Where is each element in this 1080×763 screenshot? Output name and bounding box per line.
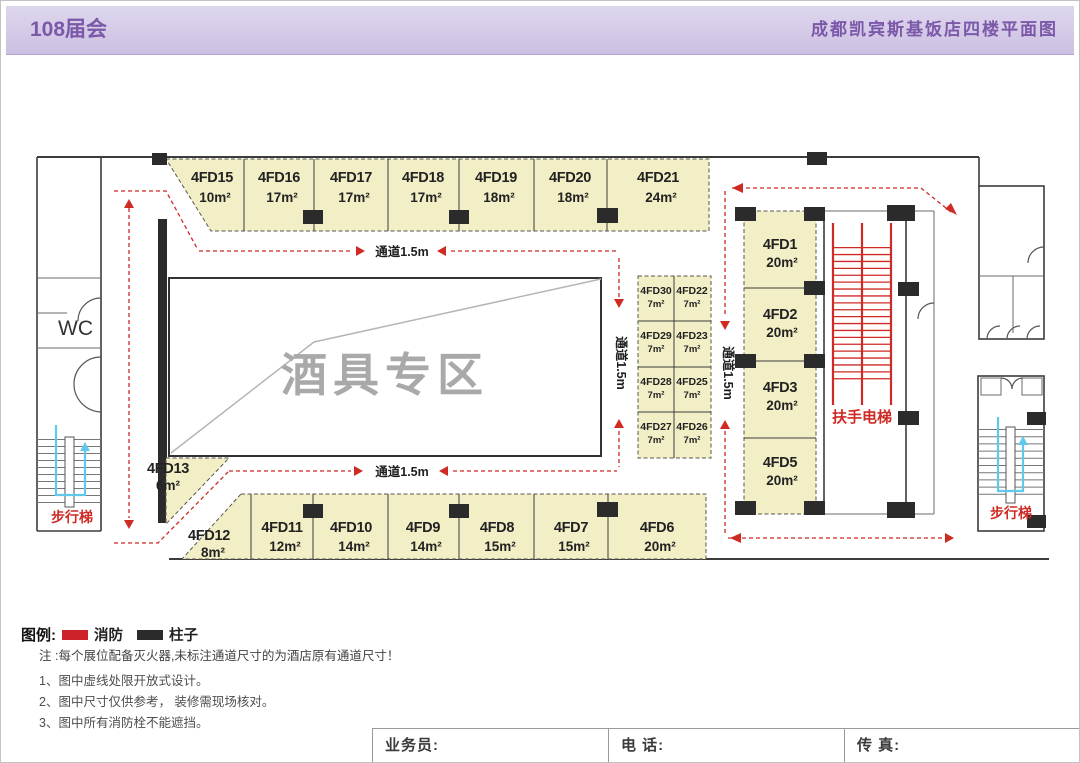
svg-text:4FD21: 4FD21 xyxy=(637,170,679,186)
central-zone: 酒具专区 xyxy=(169,278,601,456)
pillar-swatch xyxy=(137,630,163,640)
svg-text:4FD3: 4FD3 xyxy=(763,380,797,396)
svg-text:7m²: 7m² xyxy=(684,390,701,401)
svg-text:4FD16: 4FD16 xyxy=(258,170,300,186)
booth-row-top: 4FD1510m² 4FD1617m² 4FD1717m² 4FD1817m² … xyxy=(166,159,709,231)
aisle-label-bottom: 通道1.5m xyxy=(375,464,429,479)
svg-text:18m²: 18m² xyxy=(557,190,589,205)
svg-text:15m²: 15m² xyxy=(484,539,516,554)
legend: 图例: 消防 柱子 xyxy=(21,624,198,645)
svg-text:7m²: 7m² xyxy=(684,435,701,446)
svg-text:4FD17: 4FD17 xyxy=(330,170,372,186)
wc-label: WC xyxy=(58,317,93,340)
svg-text:7m²: 7m² xyxy=(684,299,701,310)
svg-text:4FD20: 4FD20 xyxy=(549,170,591,186)
svg-text:4FD9: 4FD9 xyxy=(406,520,440,536)
svg-text:17m²: 17m² xyxy=(338,190,370,205)
svg-text:7m²: 7m² xyxy=(648,344,665,355)
zone-label: 酒具专区 xyxy=(281,349,489,401)
svg-text:17m²: 17m² xyxy=(410,190,442,205)
floor-plan-page: 108届会 成都凯宾斯基饭店四楼平面图 xyxy=(0,0,1080,763)
note-3: 3、图中所有消防栓不能遮挡。 xyxy=(39,713,399,734)
booth-grid-small: 4FD307m² 4FD227m² 4FD297m² 4FD237m² 4FD2… xyxy=(638,276,711,458)
fire-swatch xyxy=(62,630,88,640)
svg-text:20m²: 20m² xyxy=(766,398,798,413)
svg-text:4FD6: 4FD6 xyxy=(640,520,674,536)
svg-text:4FD27: 4FD27 xyxy=(640,421,672,433)
svg-text:4FD23: 4FD23 xyxy=(676,330,708,342)
svg-text:12m²: 12m² xyxy=(269,539,301,554)
svg-text:18m²: 18m² xyxy=(483,190,515,205)
svg-text:4FD12: 4FD12 xyxy=(188,528,230,544)
svg-text:10m²: 10m² xyxy=(199,190,231,205)
svg-text:24m²: 24m² xyxy=(645,190,677,205)
escalator-label: 扶手电梯 xyxy=(832,408,892,426)
salesperson-field: 业务员: xyxy=(373,729,609,763)
note-main: 注 :每个展位配备灭火器,未标注通道尺寸的为酒店原有通道尺寸！ xyxy=(39,646,399,667)
svg-text:4FD18: 4FD18 xyxy=(402,170,444,186)
aisle-label-top: 通道1.5m xyxy=(375,244,429,259)
svg-text:7m²: 7m² xyxy=(648,435,665,446)
aisle-label-right: 通道1.5m xyxy=(721,346,736,400)
svg-text:4FD15: 4FD15 xyxy=(191,170,233,186)
svg-text:4FD13: 4FD13 xyxy=(147,461,189,477)
svg-text:4FD26: 4FD26 xyxy=(676,421,708,433)
svg-text:8m²: 8m² xyxy=(201,545,226,560)
svg-text:4FD19: 4FD19 xyxy=(475,170,517,186)
stairs-right-label: 步行梯 xyxy=(990,505,1032,521)
svg-text:20m²: 20m² xyxy=(766,325,798,340)
svg-text:4FD10: 4FD10 xyxy=(330,520,372,536)
svg-text:20m²: 20m² xyxy=(766,255,798,270)
legend-fire-label: 消防 xyxy=(94,624,123,645)
svg-text:4FD5: 4FD5 xyxy=(763,455,797,471)
svg-text:4FD1: 4FD1 xyxy=(763,237,797,253)
svg-text:14m²: 14m² xyxy=(410,539,442,554)
svg-text:4FD30: 4FD30 xyxy=(640,285,672,297)
svg-text:4FD2: 4FD2 xyxy=(763,307,797,323)
svg-text:4FD25: 4FD25 xyxy=(676,376,708,388)
legend-pillar-label: 柱子 xyxy=(169,624,198,645)
svg-text:4FD22: 4FD22 xyxy=(676,285,708,297)
svg-text:7m²: 7m² xyxy=(648,299,665,310)
phone-field: 电 话: xyxy=(609,729,845,763)
notes: 注 :每个展位配备灭火器,未标注通道尺寸的为酒店原有通道尺寸！ 1、图中虚线处限… xyxy=(39,646,399,734)
svg-text:6m²: 6m² xyxy=(156,478,181,493)
svg-text:15m²: 15m² xyxy=(558,539,590,554)
svg-text:14m²: 14m² xyxy=(338,539,370,554)
svg-text:4FD29: 4FD29 xyxy=(640,330,672,342)
svg-text:7m²: 7m² xyxy=(684,344,701,355)
legend-title: 图例: xyxy=(21,624,56,645)
aisle-label-mid: 通道1.5m xyxy=(614,336,629,390)
stairs-right: 步行梯 xyxy=(990,417,1032,521)
svg-text:4FD28: 4FD28 xyxy=(640,376,672,388)
svg-text:4FD11: 4FD11 xyxy=(261,520,302,536)
escalator: 扶手电梯 xyxy=(832,223,892,426)
svg-text:7m²: 7m² xyxy=(648,390,665,401)
svg-text:4FD7: 4FD7 xyxy=(554,520,588,536)
svg-text:20m²: 20m² xyxy=(644,539,676,554)
svg-text:17m²: 17m² xyxy=(266,190,298,205)
svg-text:4FD8: 4FD8 xyxy=(480,520,514,536)
contact-table: 业务员: 电 话: 传 真: xyxy=(372,728,1080,763)
svg-text:20m²: 20m² xyxy=(766,473,798,488)
stairs-left-label: 步行梯 xyxy=(51,509,93,525)
fax-field: 传 真: xyxy=(845,729,1080,763)
stairs-left: 步行梯 xyxy=(51,425,93,525)
note-1: 1、图中虚线处限开放式设计。 xyxy=(39,671,399,692)
note-2: 2、图中尺寸仅供参考， 装修需现场核对。 xyxy=(39,692,399,713)
